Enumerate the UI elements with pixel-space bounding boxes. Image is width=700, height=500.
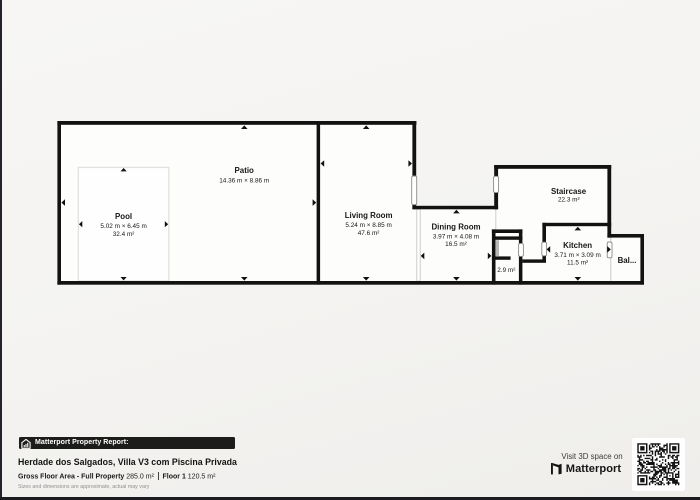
svg-text:Kitchen: Kitchen xyxy=(563,241,592,250)
svg-text:Staircase: Staircase xyxy=(551,187,587,196)
svg-text:14.36 m × 8.86 m: 14.36 m × 8.86 m xyxy=(219,178,269,185)
svg-text:Dining Room: Dining Room xyxy=(431,223,480,232)
svg-text:Living Room: Living Room xyxy=(345,211,393,220)
svg-text:5.24 m × 8.85 m: 5.24 m × 8.85 m xyxy=(345,222,391,229)
svg-text:2.9 m²: 2.9 m² xyxy=(497,267,515,274)
svg-text:32.4 m²: 32.4 m² xyxy=(113,231,135,238)
svg-text:11.5 m²: 11.5 m² xyxy=(567,259,588,266)
svg-text:3.71 m × 3.09 m: 3.71 m × 3.09 m xyxy=(554,252,600,259)
svg-text:Patio: Patio xyxy=(235,166,254,175)
svg-text:3.97 m × 4.08 m: 3.97 m × 4.08 m xyxy=(433,233,479,240)
svg-text:47.6 m²: 47.6 m² xyxy=(358,230,380,237)
svg-text:16.5 m²: 16.5 m² xyxy=(445,241,467,248)
svg-text:Bal...: Bal... xyxy=(618,256,637,265)
svg-text:22.3 m²: 22.3 m² xyxy=(558,197,580,204)
svg-text:Pool: Pool xyxy=(115,212,132,221)
svg-text:5.02 m × 6.45 m: 5.02 m × 6.45 m xyxy=(100,223,146,230)
